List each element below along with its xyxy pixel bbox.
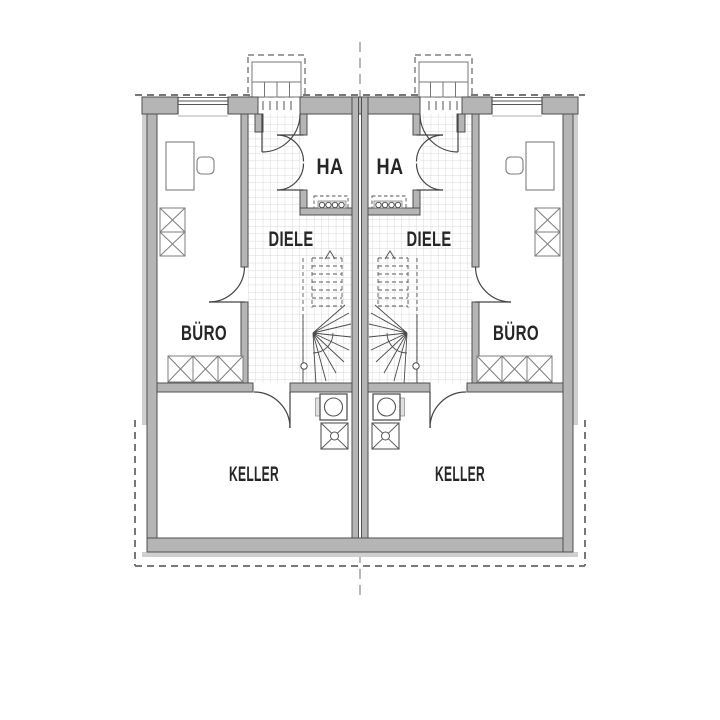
room-label-ha-left: HA xyxy=(317,154,344,179)
window-right-buero xyxy=(492,97,542,116)
wall-bottom xyxy=(147,538,563,552)
room-labels: BÜRO BÜRO DIELE DIELE HA HA KELLER KELLE… xyxy=(181,154,539,486)
wall-keller-left-a xyxy=(157,383,253,392)
wardrobe-left xyxy=(160,208,185,256)
wall-buero-diele-right-upper xyxy=(472,114,479,267)
buero-door-right xyxy=(476,267,512,303)
wall-top-seg2 xyxy=(228,97,258,114)
wall-ha-right-upper xyxy=(413,114,420,135)
party-wall xyxy=(352,97,368,538)
wall-right xyxy=(563,97,573,552)
entrance-canopy-left xyxy=(248,55,305,97)
shelf-row-left xyxy=(168,356,243,382)
shelf-row-right xyxy=(477,356,552,382)
window-left-buero xyxy=(178,97,228,116)
stair-newel-right xyxy=(413,363,419,369)
keller-door-left xyxy=(254,392,290,428)
wall-ha-left-upper xyxy=(300,114,307,135)
stair-newel-left xyxy=(301,363,307,369)
entrance-steps-right xyxy=(419,62,468,97)
meter-cabinet-left xyxy=(314,196,348,208)
room-label-diele-left: DIELE xyxy=(269,228,314,251)
interior-walls xyxy=(157,114,563,392)
meter-cabinet-right xyxy=(372,196,406,208)
room-label-buero-left: BÜRO xyxy=(181,322,227,345)
wall-ha-right-bottom xyxy=(368,208,420,215)
wall-keller-right-a xyxy=(467,383,563,392)
floor-plan-page: BÜRO BÜRO DIELE DIELE HA HA KELLER KELLE… xyxy=(0,0,720,720)
wardrobe-right xyxy=(535,208,560,256)
room-label-buero-right: BÜRO xyxy=(493,322,539,345)
wall-buero-diele-left-upper xyxy=(241,114,248,267)
wall-left xyxy=(147,97,157,552)
buero-door-left xyxy=(209,267,245,303)
wall-keller-right-b xyxy=(368,383,430,392)
wall-top-seg1 xyxy=(142,97,178,114)
wall-top-seg4 xyxy=(462,97,492,114)
desk-right xyxy=(506,142,554,190)
washing-machine-left xyxy=(316,394,348,420)
chair-left xyxy=(197,157,214,174)
wall-ha-left-bottom xyxy=(300,208,352,215)
chair-right xyxy=(506,157,523,174)
floor-drain-right xyxy=(372,423,399,449)
wall-keller-left-b xyxy=(290,383,352,392)
floor-plan-drawing: BÜRO BÜRO DIELE DIELE HA HA KELLER KELLE… xyxy=(0,0,720,720)
room-label-keller-right: KELLER xyxy=(435,463,485,486)
desk-left xyxy=(166,142,214,190)
entrance-threshold-right xyxy=(429,101,457,110)
floor-drain-left xyxy=(321,423,348,449)
wall-top-seg3 xyxy=(300,97,420,114)
room-label-keller-left: KELLER xyxy=(229,463,279,486)
wall-top-seg5 xyxy=(542,97,578,114)
keller-door-right xyxy=(430,392,466,428)
entrance-threshold-left xyxy=(263,101,291,110)
room-label-ha-right: HA xyxy=(377,154,404,179)
entrance-steps-left xyxy=(252,62,301,97)
washing-machine-right xyxy=(373,394,405,420)
room-label-diele-right: DIELE xyxy=(407,228,452,251)
entrance-canopy-right xyxy=(415,55,472,97)
